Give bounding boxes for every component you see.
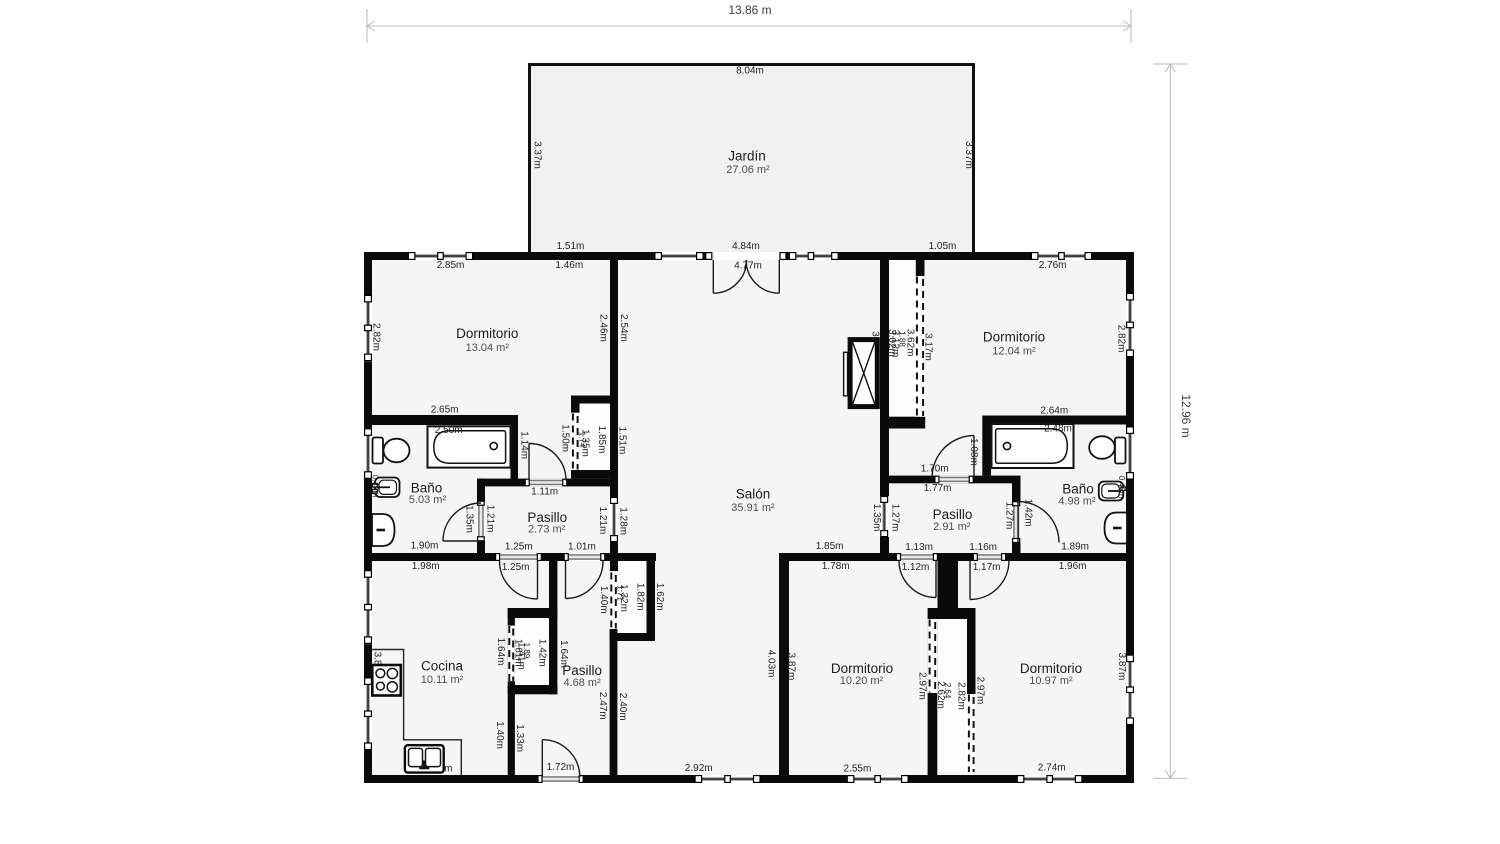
svg-text:3.87m: 3.87m xyxy=(1116,653,1127,681)
svg-text:1.27m: 1.27m xyxy=(1003,502,1014,530)
svg-text:10.97 m²: 10.97 m² xyxy=(1029,675,1073,687)
svg-text:4.03m: 4.03m xyxy=(766,650,777,678)
svg-text:2.92m: 2.92m xyxy=(685,763,713,774)
svg-text:1.35m: 1.35m xyxy=(463,505,474,533)
svg-text:1.42m: 1.42m xyxy=(537,639,548,667)
svg-text:3.62m: 3.62m xyxy=(904,329,915,357)
svg-text:12.96 m: 12.96 m xyxy=(1179,394,1193,437)
svg-text:Salón: Salón xyxy=(736,487,771,502)
svg-text:1.42m: 1.42m xyxy=(1022,499,1033,527)
svg-text:2.82m: 2.82m xyxy=(370,323,381,351)
svg-text:1.28m: 1.28m xyxy=(617,507,628,535)
svg-text:13.04 m²: 13.04 m² xyxy=(466,342,510,354)
svg-text:Dormitorio: Dormitorio xyxy=(1020,661,1082,676)
svg-text:1.13m: 1.13m xyxy=(905,542,933,553)
svg-text:1.96m: 1.96m xyxy=(1059,561,1087,572)
svg-text:2.82m: 2.82m xyxy=(956,682,967,710)
svg-text:1.90m: 1.90m xyxy=(411,541,439,552)
svg-text:Pasillo: Pasillo xyxy=(933,507,973,522)
svg-text:Dormitorio: Dormitorio xyxy=(983,330,1045,345)
svg-text:1.14m: 1.14m xyxy=(519,431,530,459)
svg-text:Pasillo: Pasillo xyxy=(562,663,602,678)
svg-text:1.46m: 1.46m xyxy=(555,260,583,271)
svg-text:1.40m: 1.40m xyxy=(598,586,609,614)
svg-text:2.85m: 2.85m xyxy=(437,260,465,271)
svg-text:1.17m: 1.17m xyxy=(973,562,1001,573)
svg-text:2.73 m²: 2.73 m² xyxy=(528,524,566,536)
svg-text:2.65m: 2.65m xyxy=(431,405,459,416)
svg-text:10.20 m²: 10.20 m² xyxy=(840,675,884,687)
svg-text:1.16m: 1.16m xyxy=(969,542,997,553)
svg-text:1.25m: 1.25m xyxy=(502,562,530,573)
svg-text:0.46m: 0.46m xyxy=(1117,476,1126,499)
svg-text:2.46m: 2.46m xyxy=(598,314,609,342)
svg-text:2.74m: 2.74m xyxy=(1038,763,1066,774)
svg-text:3.37m: 3.37m xyxy=(532,141,543,169)
svg-text:Dormitorio: Dormitorio xyxy=(831,661,893,676)
svg-text:1.98m: 1.98m xyxy=(412,561,440,572)
svg-text:1.01m: 1.01m xyxy=(568,542,596,553)
svg-text:2.54m: 2.54m xyxy=(618,314,629,342)
svg-text:4.98 m²: 4.98 m² xyxy=(1058,496,1096,508)
svg-text:4.84m: 4.84m xyxy=(732,241,760,252)
svg-text:1.64m: 1.64m xyxy=(495,638,506,666)
svg-text:27.06 m²: 27.06 m² xyxy=(726,164,770,176)
svg-text:1.21m: 1.21m xyxy=(485,505,496,533)
svg-text:2.76m: 2.76m xyxy=(1039,260,1067,271)
svg-text:1.40m: 1.40m xyxy=(494,721,505,749)
svg-text:1.27m: 1.27m xyxy=(890,504,901,532)
svg-text:2.97m: 2.97m xyxy=(917,672,928,700)
svg-text:2.64m: 2.64m xyxy=(1040,405,1068,416)
svg-text:10.11 m²: 10.11 m² xyxy=(421,674,464,686)
svg-text:Cocina: Cocina xyxy=(421,659,464,674)
svg-text:2.91 m²: 2.91 m² xyxy=(933,521,971,533)
svg-text:3.87m: 3.87m xyxy=(786,653,797,681)
svg-text:Jardín: Jardín xyxy=(728,149,766,164)
svg-text:13.86 m: 13.86 m xyxy=(728,3,771,17)
svg-text:4.68 m²: 4.68 m² xyxy=(563,677,601,689)
svg-text:1.50m: 1.50m xyxy=(560,424,571,452)
svg-text:2.64: 2.64 xyxy=(943,683,952,699)
svg-text:1.33m: 1.33m xyxy=(514,724,525,752)
svg-text:Baño: Baño xyxy=(1062,482,1094,497)
svg-text:2.47m: 2.47m xyxy=(597,692,608,720)
svg-text:12.04 m²: 12.04 m² xyxy=(992,346,1036,358)
svg-text:2.97m: 2.97m xyxy=(975,677,986,705)
svg-text:1.11m: 1.11m xyxy=(531,486,558,497)
svg-text:1.62m: 1.62m xyxy=(654,583,665,611)
svg-text:1.89m: 1.89m xyxy=(1061,541,1089,552)
svg-text:1.25m: 1.25m xyxy=(505,542,533,553)
svg-text:1.77m: 1.77m xyxy=(924,483,952,494)
svg-text:1.85m: 1.85m xyxy=(816,541,844,552)
svg-text:1.21m: 1.21m xyxy=(597,507,608,535)
svg-text:1.72m: 1.72m xyxy=(547,762,575,773)
svg-text:2.50m: 2.50m xyxy=(435,425,463,436)
svg-text:1.51m: 1.51m xyxy=(557,241,585,252)
svg-text:2.48m: 2.48m xyxy=(1044,423,1072,434)
svg-text:1.78m: 1.78m xyxy=(822,561,850,572)
svg-text:2.55m: 2.55m xyxy=(844,763,872,774)
svg-text:3.17m: 3.17m xyxy=(923,333,934,361)
svg-text:1.85m: 1.85m xyxy=(596,426,607,454)
svg-text:1.35m: 1.35m xyxy=(871,504,882,532)
svg-text:2.40m: 2.40m xyxy=(617,693,628,721)
svg-text:1.70m: 1.70m xyxy=(921,464,949,475)
svg-text:1.35m: 1.35m xyxy=(579,429,590,457)
svg-text:8.04m: 8.04m xyxy=(736,66,764,77)
svg-text:5.03 m²: 5.03 m² xyxy=(409,494,447,506)
svg-text:1.89: 1.89 xyxy=(522,643,531,659)
svg-text:1.32m: 1.32m xyxy=(618,584,629,612)
svg-text:Dormitorio: Dormitorio xyxy=(456,326,518,341)
svg-text:1.08m: 1.08m xyxy=(968,438,979,466)
svg-text:2.82m: 2.82m xyxy=(1116,325,1127,353)
svg-text:0.46m: 0.46m xyxy=(370,475,379,498)
svg-text:35.91 m²: 35.91 m² xyxy=(731,502,775,514)
svg-text:1.12m: 1.12m xyxy=(902,562,930,573)
svg-text:4.77m: 4.77m xyxy=(734,261,762,272)
svg-text:1.51m: 1.51m xyxy=(616,427,627,455)
svg-text:1.05m: 1.05m xyxy=(929,241,957,252)
svg-text:1.82m: 1.82m xyxy=(635,583,646,611)
svg-text:3.37m: 3.37m xyxy=(963,141,974,169)
